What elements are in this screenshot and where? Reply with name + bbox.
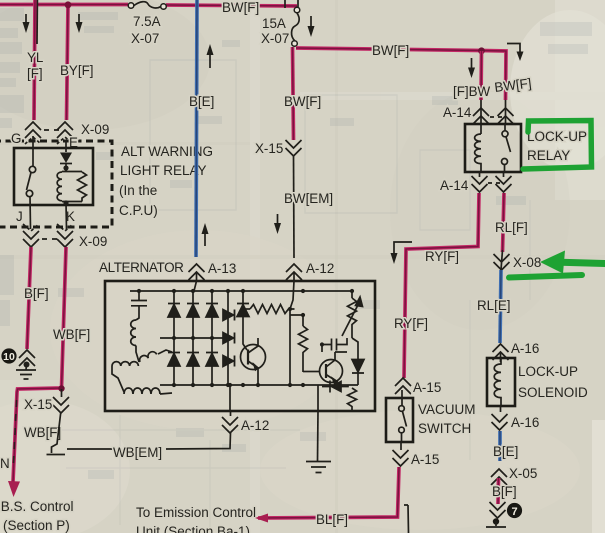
svg-text:B[F]: B[F]: [24, 286, 49, 301]
svg-text:A-15: A-15: [413, 380, 441, 395]
svg-text:A-14: A-14: [440, 178, 469, 193]
svg-text:(Section P): (Section P): [3, 518, 70, 533]
svg-text:VACUUM: VACUUM: [418, 402, 476, 417]
svg-text:LOCK-UP: LOCK-UP: [527, 129, 587, 144]
svg-text:A-16: A-16: [511, 341, 539, 356]
svg-text:LOCK-UP: LOCK-UP: [518, 364, 578, 379]
svg-text:RY[F]: RY[F]: [425, 249, 459, 264]
svg-text:J: J: [16, 209, 23, 224]
svg-text:A-14: A-14: [443, 105, 472, 120]
svg-text:X-15: X-15: [255, 141, 283, 156]
svg-text:15A: 15A: [262, 16, 286, 31]
svg-text:X-05: X-05: [509, 466, 537, 481]
svg-text:WB[F]: WB[F]: [24, 425, 61, 440]
svg-text:RL[E]: RL[E]: [477, 298, 511, 313]
svg-text:A-12: A-12: [241, 418, 269, 433]
svg-text:K: K: [66, 209, 75, 224]
svg-text:LIGHT RELAY: LIGHT RELAY: [120, 163, 207, 178]
svg-text:SOLENOID: SOLENOID: [518, 385, 588, 400]
svg-text:BW[F]: BW[F]: [222, 0, 259, 15]
svg-text:.B.S. Control: .B.S. Control: [0, 499, 74, 514]
svg-text:To Emission Control: To Emission Control: [136, 505, 256, 520]
svg-text:BY[F]: BY[F]: [60, 63, 93, 78]
svg-text:BW[F]: BW[F]: [284, 94, 321, 109]
svg-text:B[E]: B[E]: [189, 94, 214, 109]
svg-text:Unit (Section Ba-1): Unit (Section Ba-1): [136, 524, 250, 533]
svg-text:WB[EM]: WB[EM]: [113, 445, 162, 460]
svg-text:SWITCH: SWITCH: [418, 421, 471, 436]
svg-text:C.P.U): C.P.U): [119, 203, 158, 218]
svg-text:X-09: X-09: [79, 234, 107, 249]
svg-text:B[E]: B[E]: [493, 444, 518, 459]
svg-text:X-09: X-09: [81, 122, 109, 137]
svg-text:[F]BW: [F]BW: [453, 84, 491, 99]
svg-text:X-15: X-15: [24, 397, 52, 412]
svg-text:A-15: A-15: [411, 452, 439, 467]
svg-text:X-07: X-07: [261, 31, 289, 46]
svg-text:[F]: [F]: [27, 66, 43, 81]
svg-text:A-12: A-12: [306, 261, 334, 276]
svg-text:B[F]: B[F]: [492, 484, 517, 499]
svg-text:ALTERNATOR: ALTERNATOR: [99, 260, 184, 275]
svg-text:RL[F]: RL[F]: [495, 220, 528, 235]
svg-text:X-07: X-07: [131, 31, 159, 46]
svg-text:YL: YL: [27, 50, 43, 65]
svg-text:BL[F]: BL[F]: [316, 512, 348, 527]
svg-text:X-08: X-08: [513, 255, 541, 270]
svg-text:(In the: (In the: [119, 183, 157, 198]
svg-text:RELAY: RELAY: [527, 148, 570, 163]
svg-text:ALT WARNING: ALT WARNING: [121, 144, 213, 159]
svg-text:RY[F]: RY[F]: [394, 316, 428, 331]
svg-text:A-16: A-16: [511, 415, 539, 430]
svg-text:BW[EM]: BW[EM]: [284, 191, 333, 206]
svg-text:WB[F]: WB[F]: [53, 327, 90, 342]
svg-text:N: N: [0, 456, 10, 471]
svg-text:G: G: [11, 131, 21, 146]
svg-text:7: 7: [511, 506, 517, 518]
svg-text:A-13: A-13: [208, 261, 236, 276]
svg-text:BW[F]: BW[F]: [372, 43, 409, 58]
svg-text:7.5A: 7.5A: [133, 14, 161, 29]
svg-text:10: 10: [3, 351, 15, 363]
